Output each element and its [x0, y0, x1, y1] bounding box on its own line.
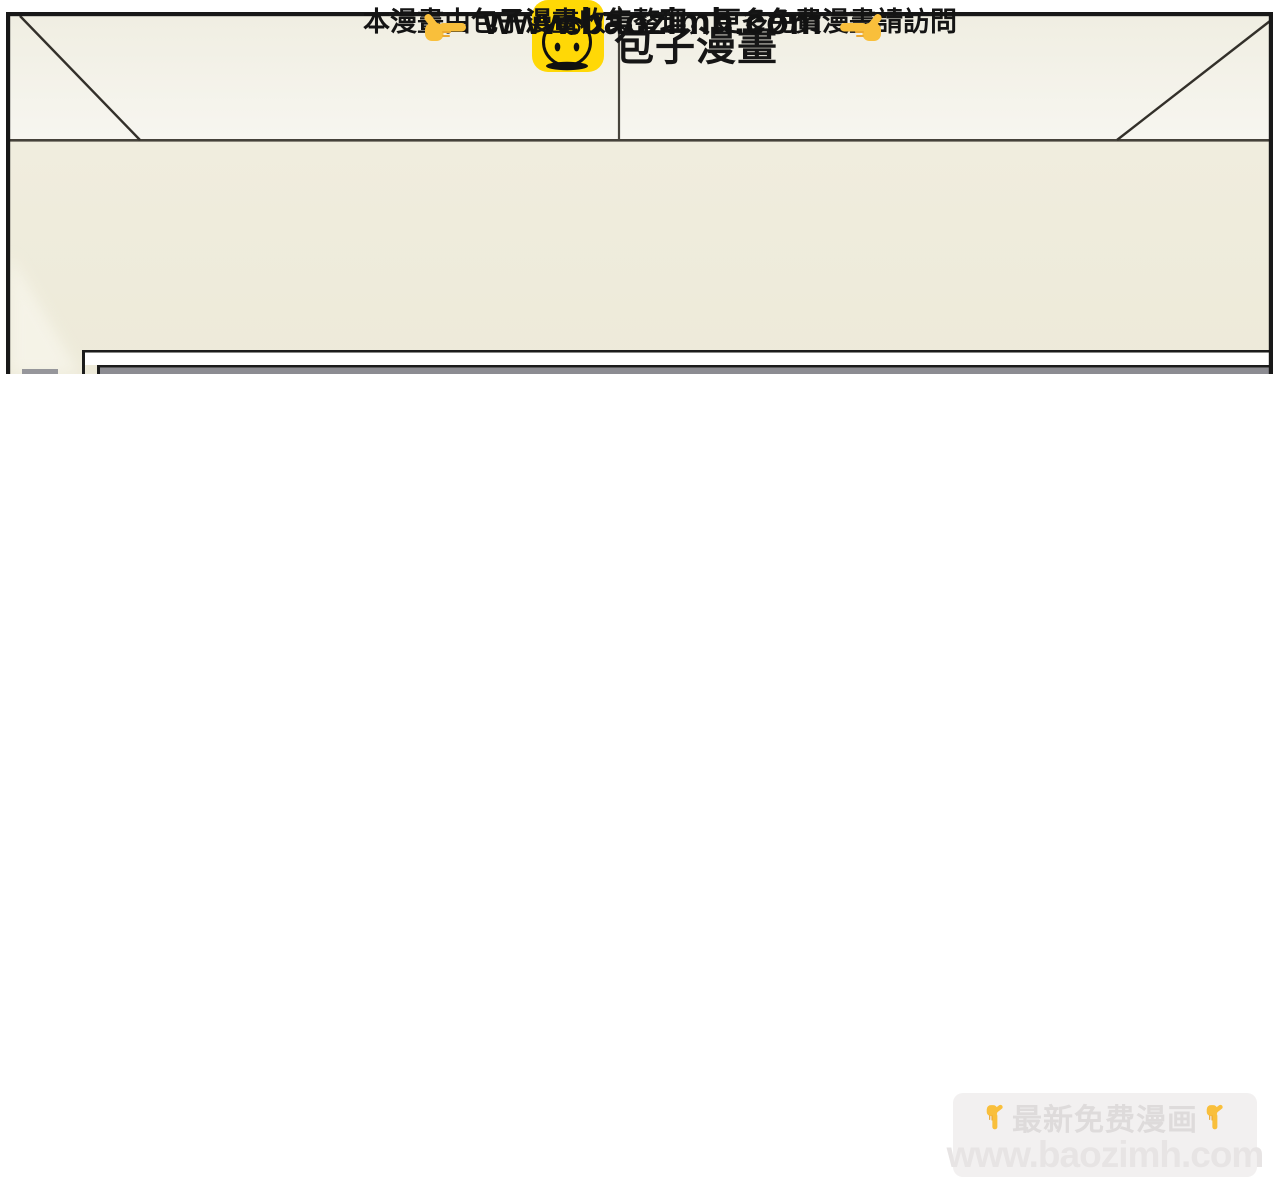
- footer-url-row: www.baozimh.com: [13, 0, 1280, 44]
- watermark-row1: 最新免费漫画: [982, 1097, 1228, 1137]
- wall-area: [10, 140, 1269, 374]
- pointing-down-hand-icon: [982, 1104, 1008, 1130]
- watermark-badge: 最新免费漫画 www.baozimh.com: [953, 1093, 1257, 1177]
- ceiling-line: [8, 139, 1269, 142]
- watermark-url: www.baozimh.com: [947, 1137, 1264, 1173]
- footer-url: www.baozimh.com: [483, 1, 822, 43]
- image-cut-artifact: [22, 369, 58, 374]
- board-inner-top-edge: [97, 365, 1269, 368]
- board-inner-left-edge: [97, 365, 100, 374]
- board-white-band: [85, 353, 1269, 365]
- board-outer-left-edge: [82, 350, 85, 374]
- board-outer-top-edge: [82, 350, 1269, 353]
- watermark-text: 最新免费漫画: [1012, 1095, 1198, 1139]
- pointing-right-hand-icon: [423, 10, 467, 44]
- board-grey-fill: [100, 368, 1269, 374]
- pointing-left-hand-icon: [839, 10, 883, 44]
- pointing-down-hand-icon: [1202, 1104, 1228, 1130]
